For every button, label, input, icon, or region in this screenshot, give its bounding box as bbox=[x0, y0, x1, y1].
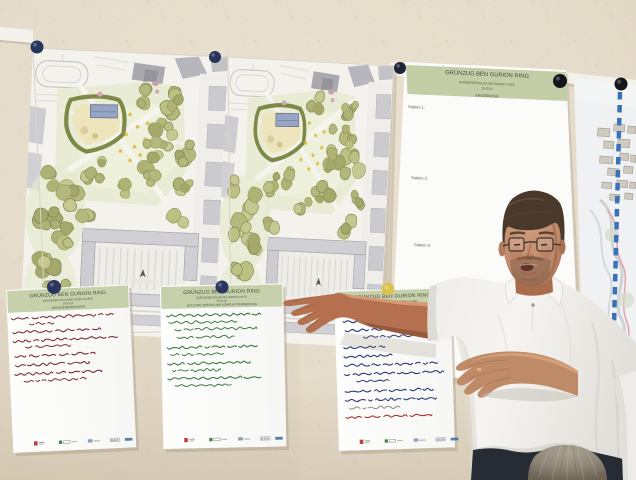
svg-text:23.09.24: 23.09.24 bbox=[481, 86, 493, 91]
svg-text:Station 1:: Station 1: bbox=[408, 104, 425, 110]
svg-text:Station 2:: Station 2: bbox=[411, 175, 428, 181]
svg-text:B·G·R: B·G·R bbox=[437, 437, 445, 441]
svg-text:Station 3:: Station 3: bbox=[414, 242, 431, 248]
svg-text:B·G·R: B·G·R bbox=[261, 436, 269, 440]
svg-text:B·G·R: B·G·R bbox=[111, 438, 119, 442]
